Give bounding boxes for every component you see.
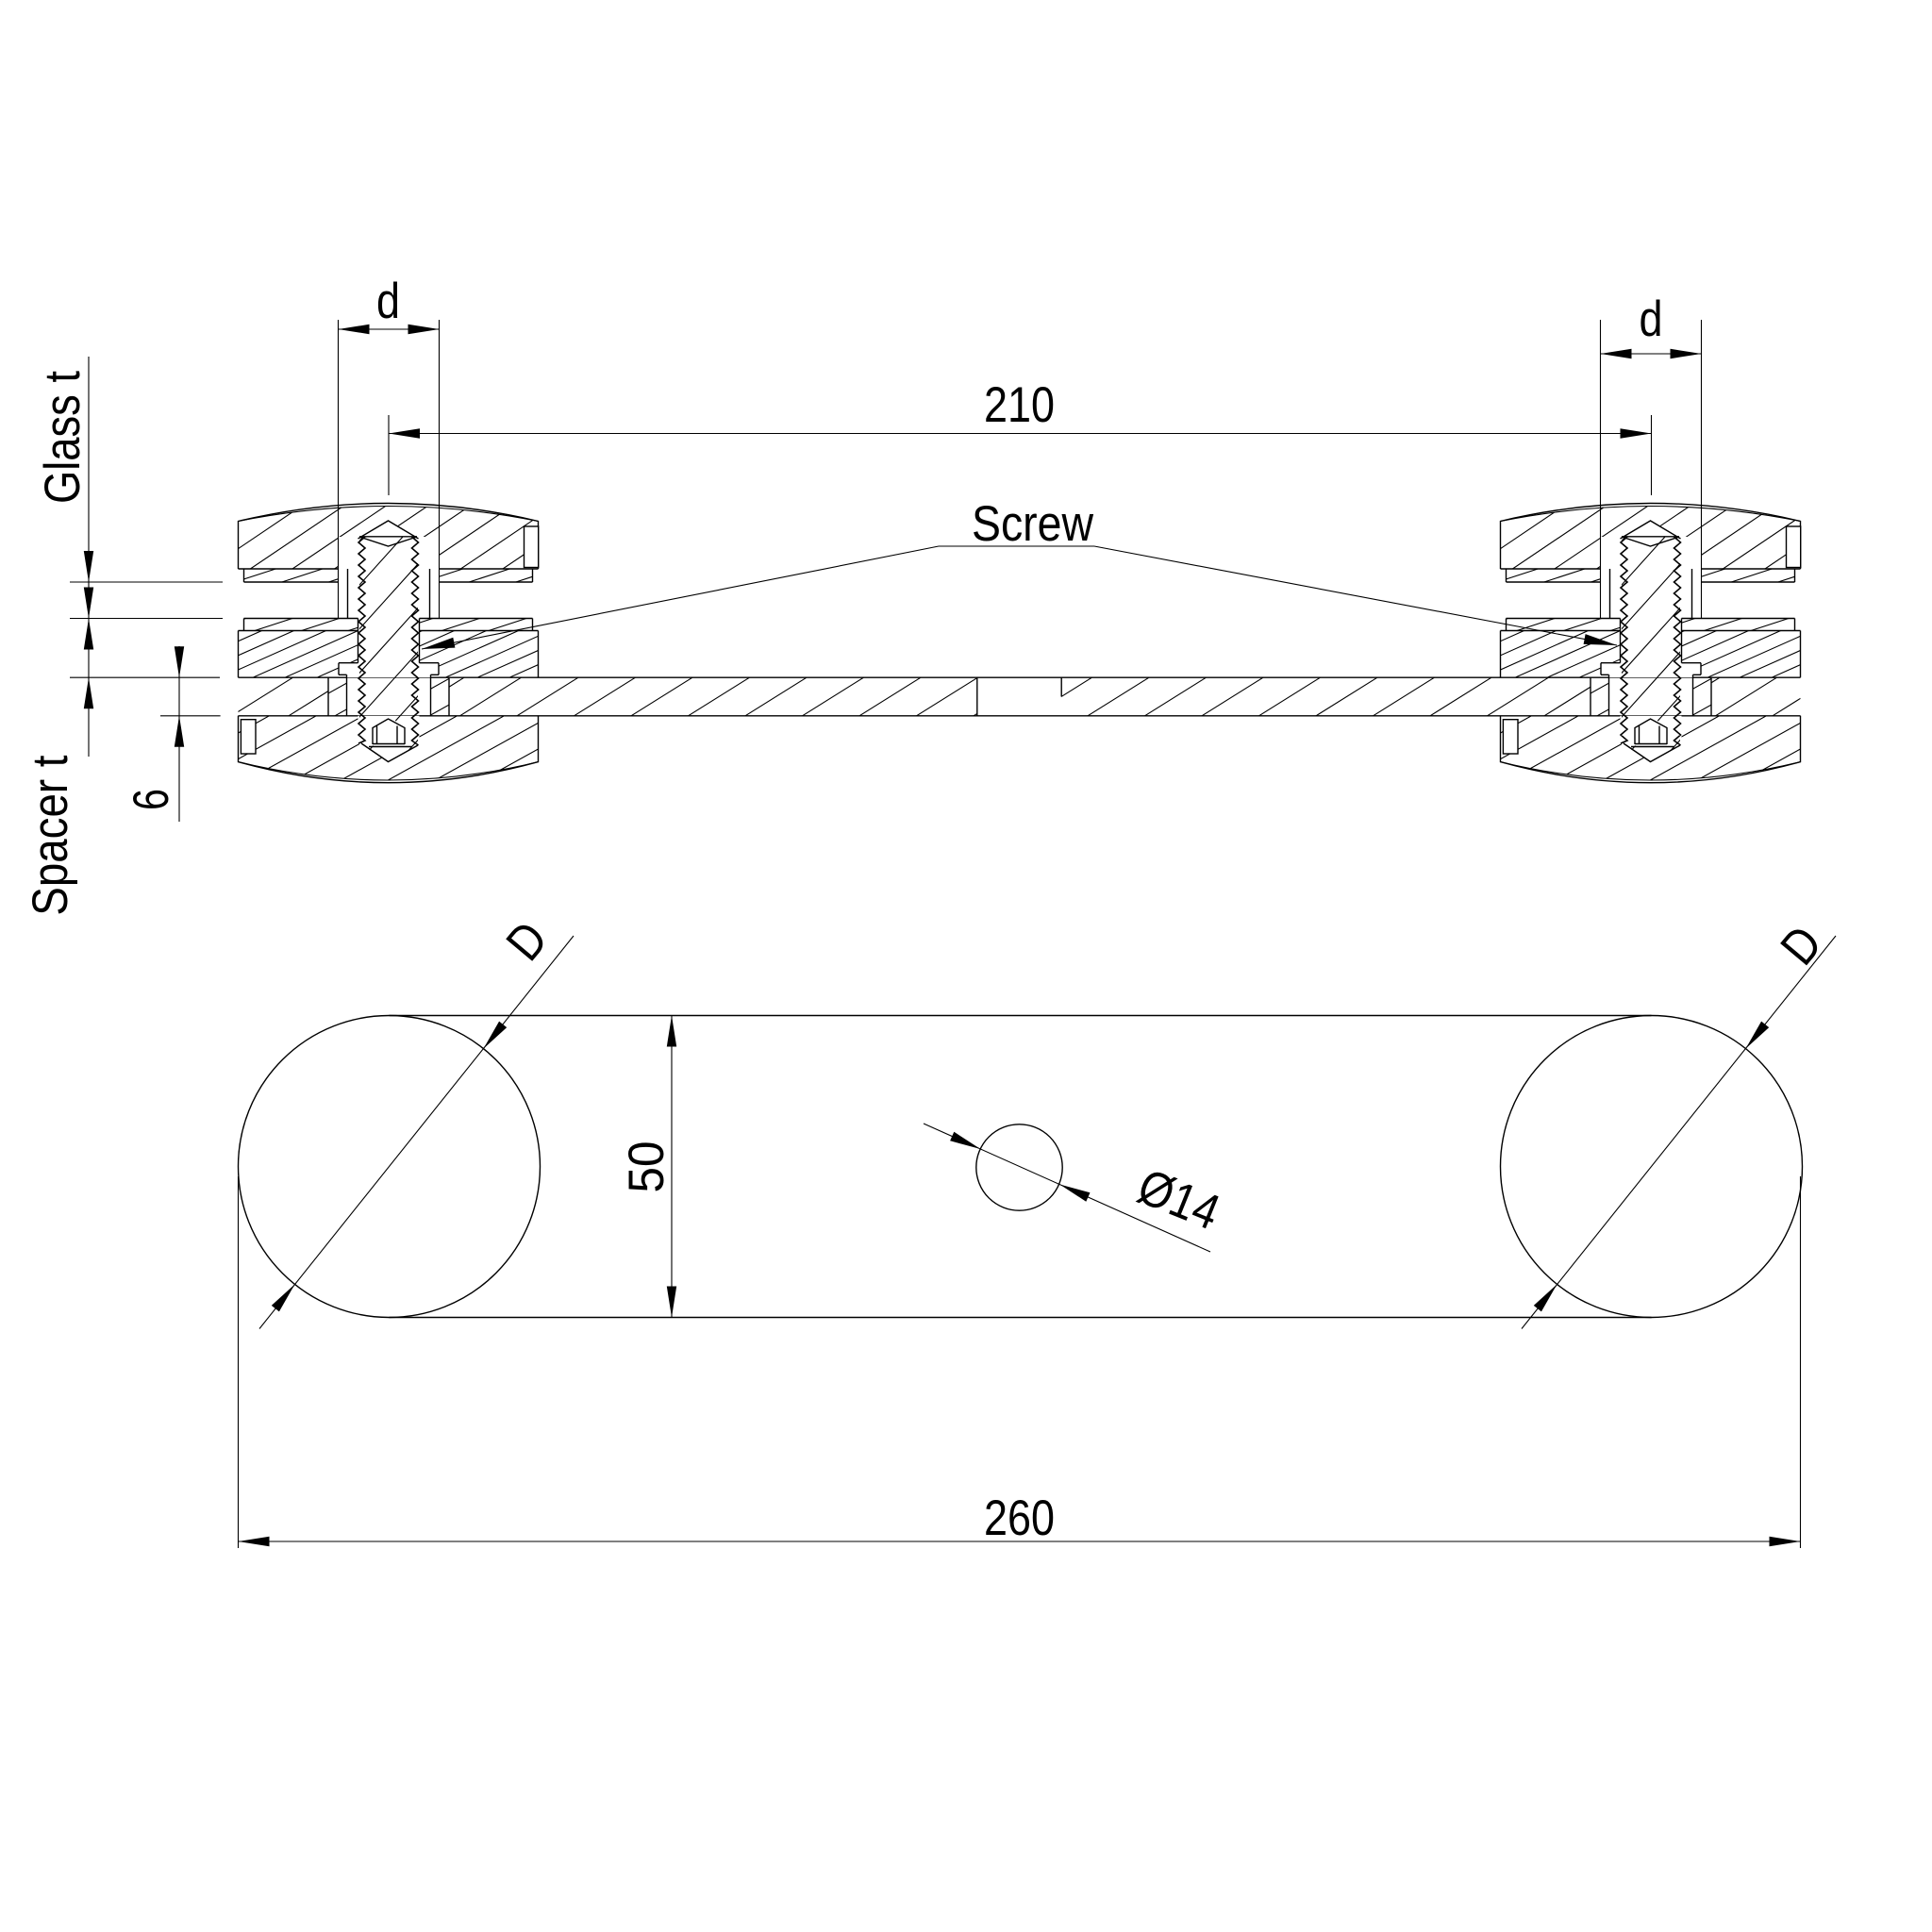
svg-text:Screw: Screw bbox=[972, 496, 1094, 552]
svg-text:6: 6 bbox=[124, 789, 179, 810]
svg-text:d: d bbox=[1640, 291, 1663, 347]
svg-text:210: 210 bbox=[984, 377, 1055, 433]
svg-text:Spacer t: Spacer t bbox=[23, 755, 78, 915]
svg-text:50: 50 bbox=[619, 1141, 675, 1193]
svg-text:Glass t: Glass t bbox=[35, 371, 91, 504]
svg-text:d: d bbox=[376, 274, 400, 329]
svg-text:260: 260 bbox=[984, 1491, 1055, 1546]
